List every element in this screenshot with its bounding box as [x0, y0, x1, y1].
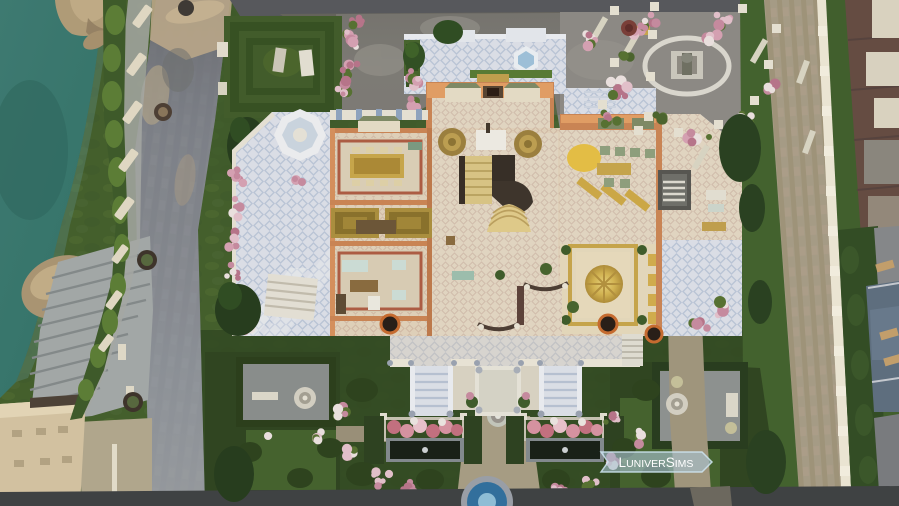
svg-text:LUNIVERSIMS: LUNIVERSIMS — [619, 455, 694, 470]
